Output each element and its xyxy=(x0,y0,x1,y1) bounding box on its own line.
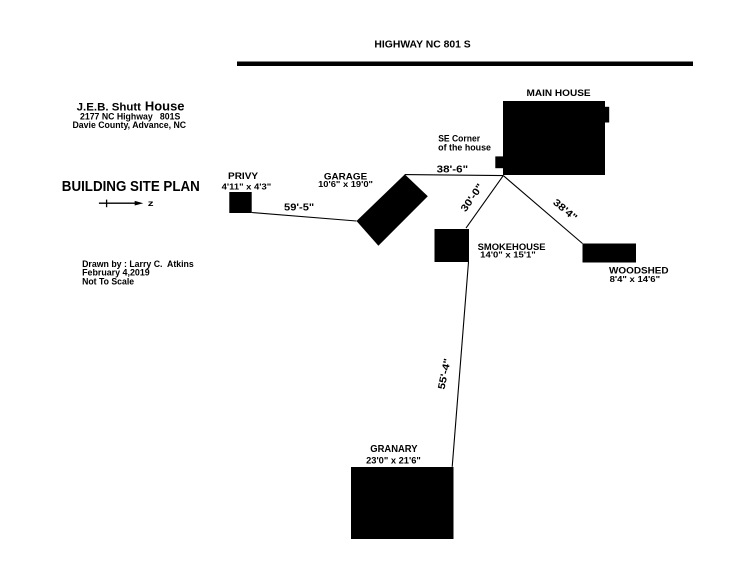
svg-text:4'11" x 4'3": 4'11" x 4'3" xyxy=(222,182,272,191)
svg-text:10'6" x 19'0": 10'6" x 19'0" xyxy=(318,180,373,189)
svg-text:PRIVY: PRIVY xyxy=(228,171,258,181)
svg-text:Not To Scale: Not To Scale xyxy=(82,277,134,288)
svg-text:BUILDING SITE PLAN: BUILDING SITE PLAN xyxy=(62,179,200,195)
svg-text:of the house: of the house xyxy=(438,142,491,152)
svg-text:GRANARY: GRANARY xyxy=(370,444,418,455)
svg-text:14'0" x 15'1": 14'0" x 15'1" xyxy=(480,249,536,259)
svg-text:MAIN HOUSE: MAIN HOUSE xyxy=(527,88,591,98)
svg-text:Davie County, Advance, NC: Davie County, Advance, NC xyxy=(73,120,187,130)
svg-text:z: z xyxy=(148,198,154,208)
svg-text:23'0" x 21'6": 23'0" x 21'6" xyxy=(366,455,421,465)
svg-text:8'4" x 14'6": 8'4" x 14'6" xyxy=(610,274,661,284)
svg-text:59'-5": 59'-5" xyxy=(284,203,314,214)
svg-text:HIGHWAY NC 801 S: HIGHWAY NC 801 S xyxy=(374,38,470,50)
svg-text:38'-6": 38'-6" xyxy=(437,164,469,175)
